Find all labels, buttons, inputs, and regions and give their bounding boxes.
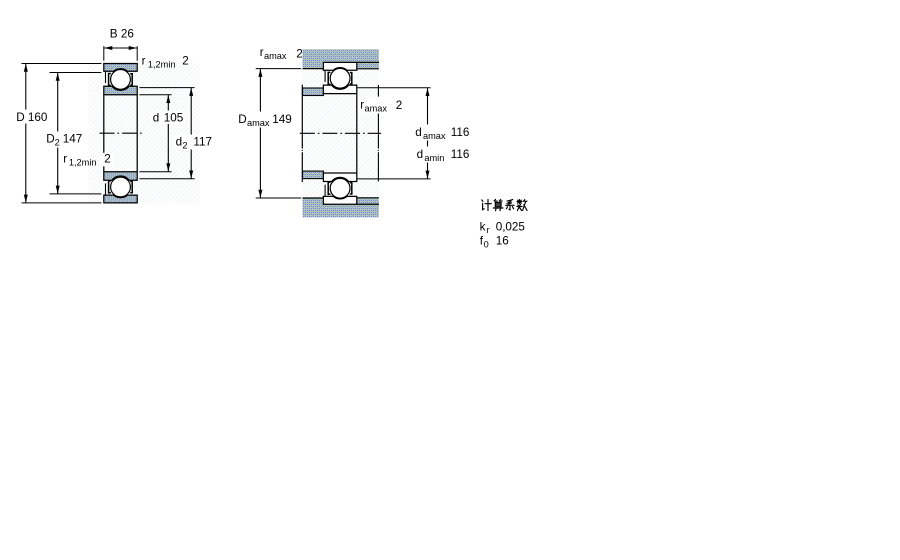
svg-text:amax: amax (247, 118, 270, 128)
svg-text:147: 147 (63, 133, 83, 146)
svg-text:amax: amax (365, 104, 388, 114)
svg-text:k: k (480, 220, 486, 233)
svg-text:D 160: D 160 (16, 111, 48, 124)
svg-text:2: 2 (182, 140, 187, 150)
svg-text:149: 149 (272, 113, 292, 126)
svg-text:r: r (63, 153, 67, 166)
svg-text:0,025: 0,025 (496, 220, 526, 233)
svg-text:2: 2 (55, 138, 60, 148)
svg-text:r: r (487, 225, 490, 235)
svg-text:d: d (176, 135, 183, 148)
svg-text:2: 2 (182, 54, 189, 67)
svg-text:2: 2 (104, 153, 111, 166)
svg-text:1,2min: 1,2min (148, 59, 176, 69)
svg-text:amax: amax (264, 51, 287, 61)
svg-text:105: 105 (164, 111, 184, 124)
svg-text:0: 0 (484, 239, 489, 249)
svg-text:16: 16 (496, 235, 509, 248)
svg-text:B 26: B 26 (110, 27, 134, 40)
svg-text:amin: amin (424, 153, 444, 163)
svg-text:d: d (415, 126, 422, 139)
svg-text:2: 2 (296, 47, 303, 60)
svg-text:amax: amax (423, 131, 446, 141)
svg-text:116: 116 (451, 148, 470, 161)
svg-text:2: 2 (396, 99, 403, 112)
svg-text:d: d (417, 148, 424, 161)
svg-text:1,2min: 1,2min (69, 158, 97, 168)
svg-text:116: 116 (451, 126, 470, 139)
svg-text:117: 117 (193, 135, 212, 148)
svg-text:D: D (46, 133, 54, 146)
svg-text:D: D (238, 113, 246, 126)
svg-text:r: r (142, 54, 146, 67)
svg-text:d: d (153, 111, 160, 124)
